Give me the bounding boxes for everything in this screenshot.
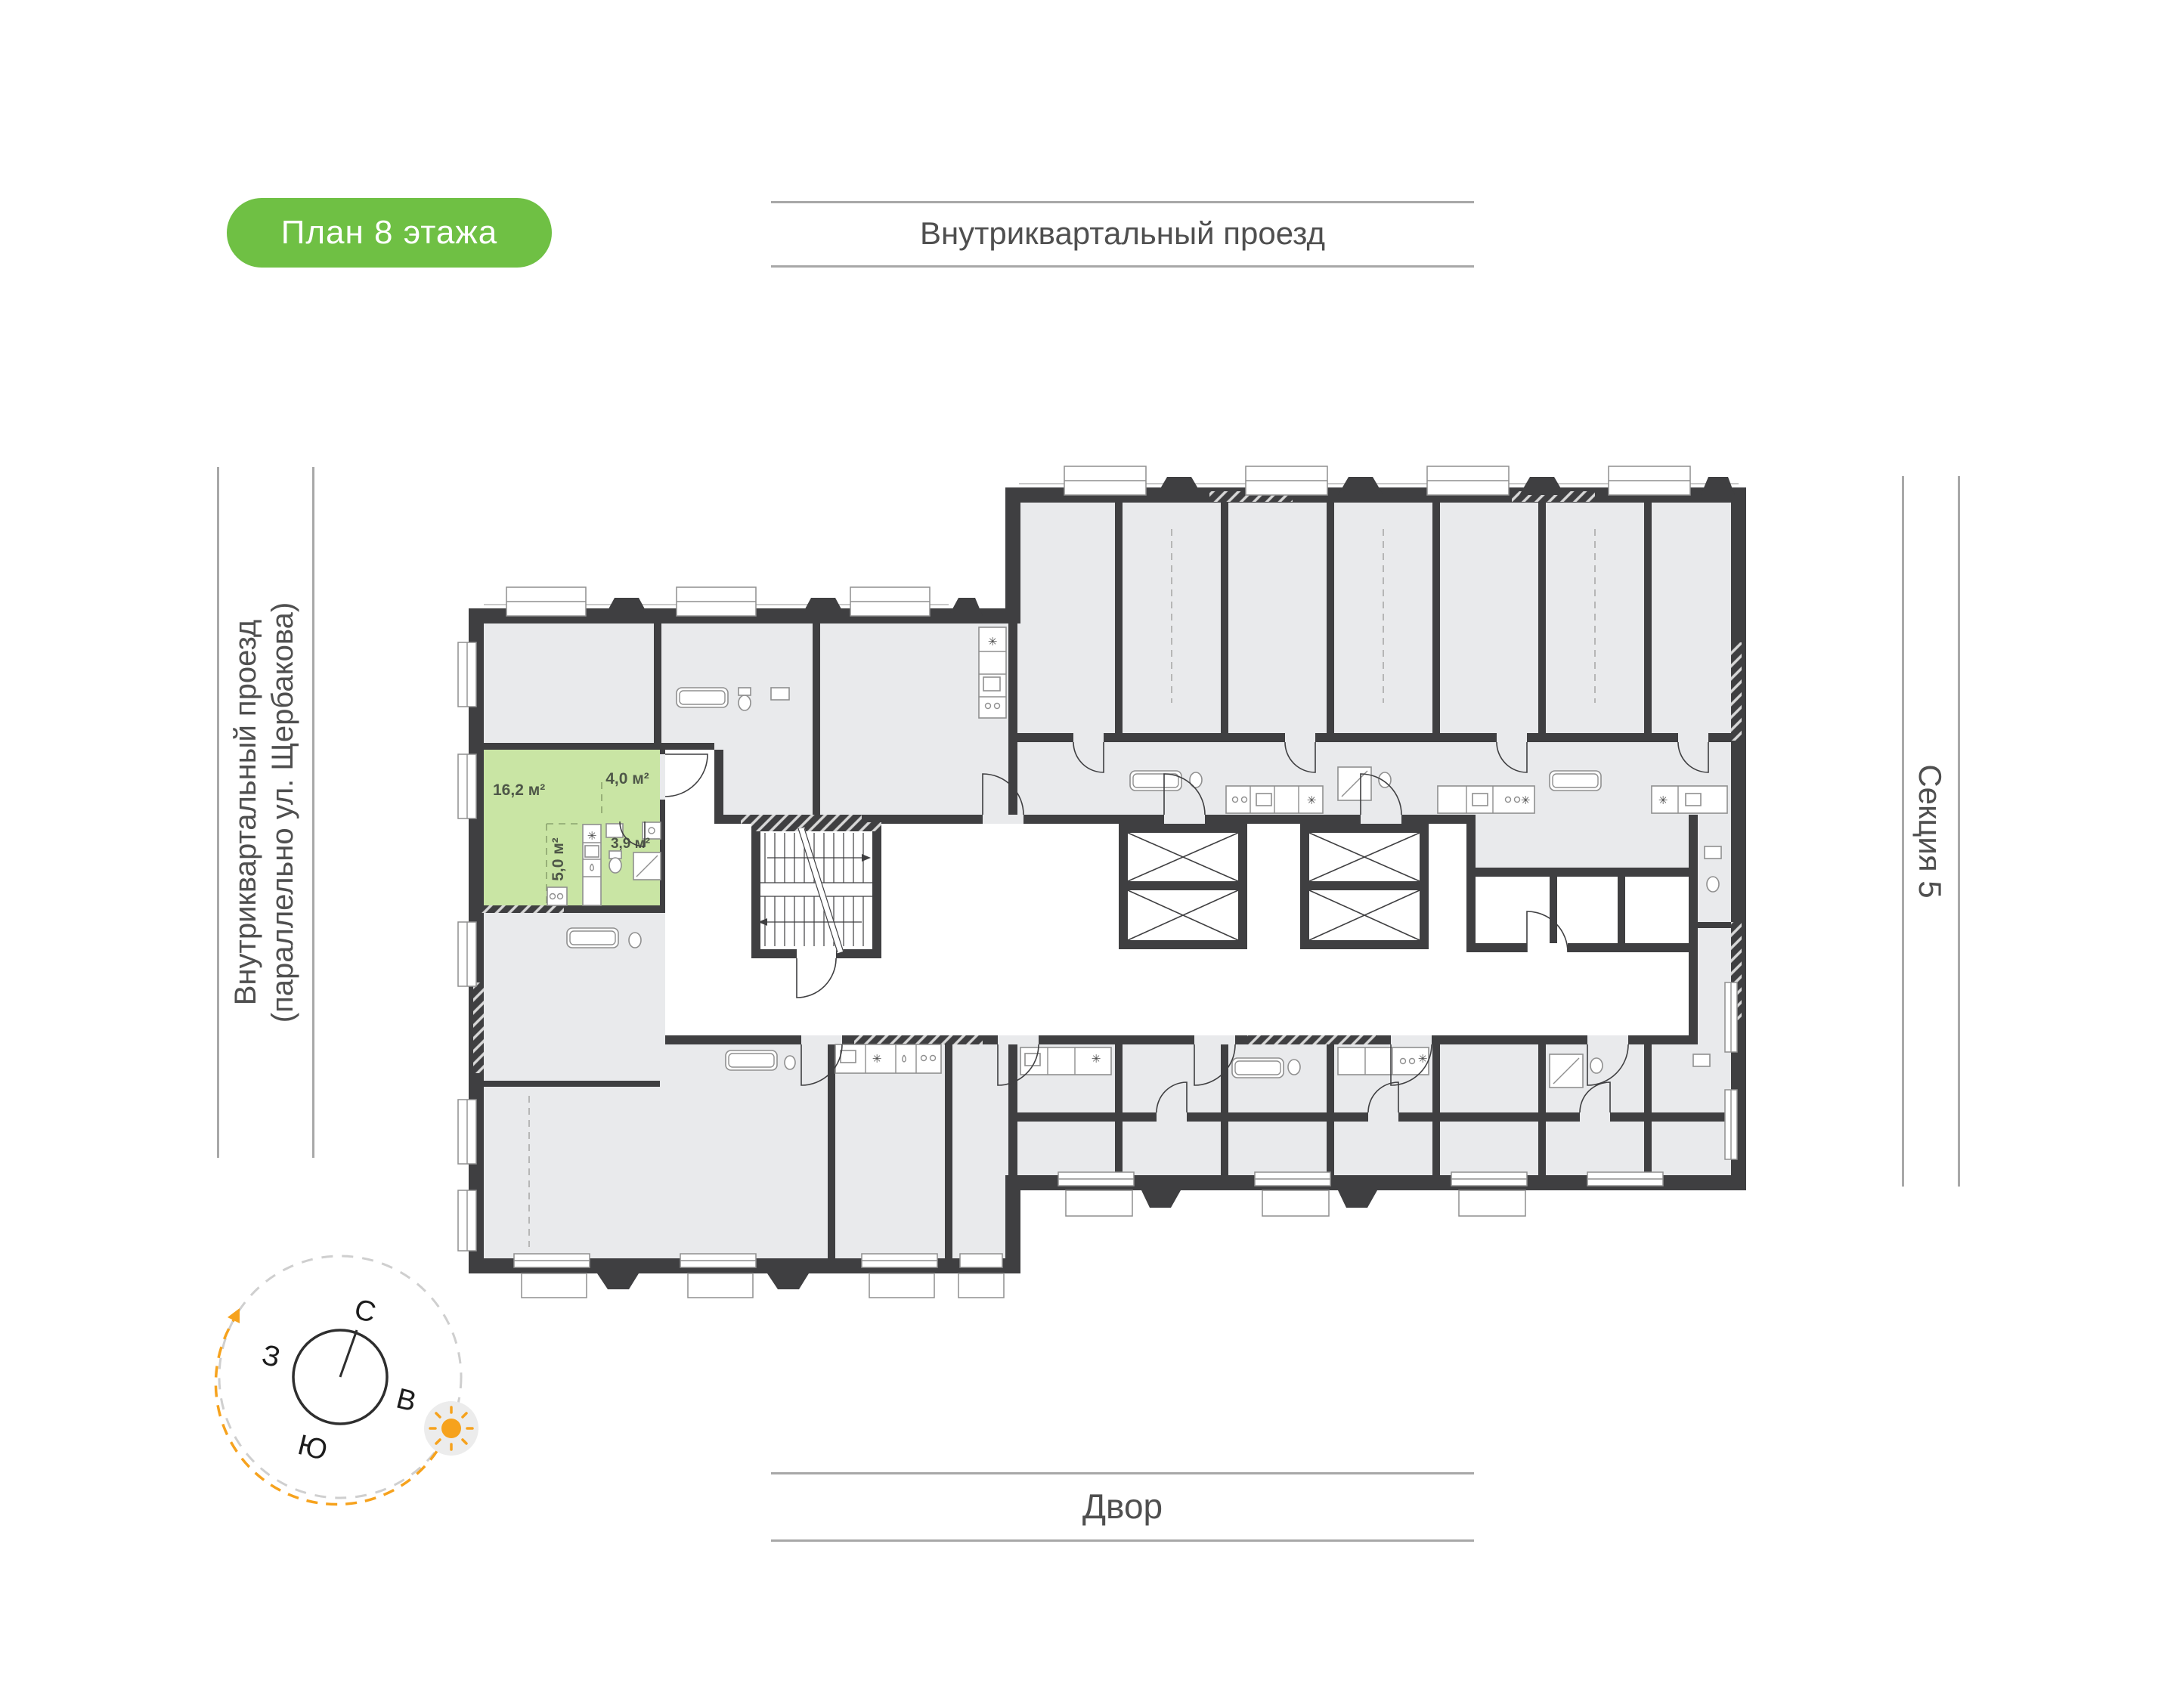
svg-text:✳: ✳ <box>1307 794 1317 807</box>
left-road-line-outer <box>217 467 219 1158</box>
section-text: Секция 5 <box>1912 764 1948 898</box>
svg-text:✳: ✳ <box>1521 794 1531 807</box>
toilet-icon <box>1707 877 1719 892</box>
toilet-icon <box>739 695 751 710</box>
left-road-label: Внутриквартальный проезд (параллельно ул… <box>228 457 302 1168</box>
floor-plan-drawing: 16,2 м² 4,0 м² 5,0 м² 3,9 м² <box>454 453 1769 1315</box>
sink-icon <box>1693 1054 1710 1066</box>
toilet-icon <box>785 1056 795 1069</box>
compass-south: Ю <box>295 1429 330 1467</box>
left-road-line-inner <box>312 467 314 1158</box>
left-road-text-1: Внутриквартальный проезд <box>228 457 265 1168</box>
compass-east: В <box>393 1383 420 1419</box>
compass-west: З <box>259 1339 283 1374</box>
toilet-icon <box>1288 1060 1300 1075</box>
sun-icon <box>424 1401 478 1456</box>
section-line-outer <box>1958 476 1960 1187</box>
svg-text:✳: ✳ <box>872 1052 882 1066</box>
left-road-text-2: (параллельно ул. Щербакова) <box>265 457 302 1168</box>
top-road-label: Внутриквартальный проезд <box>771 201 1474 268</box>
room-area-label: 16,2 м² <box>493 781 545 799</box>
stairwell <box>758 828 872 952</box>
svg-text:✳: ✳ <box>1418 1052 1428 1066</box>
floor-plan-page: План 8 этажа Внутриквартальный проезд Дв… <box>0 0 2177 1708</box>
elevator-bank-east <box>1300 824 1429 949</box>
entry-vestibule <box>665 750 714 952</box>
sink-icon <box>771 688 789 700</box>
sink-icon <box>1705 846 1721 859</box>
corridor-right-bay <box>1476 877 1689 952</box>
elevator-bank-west <box>1119 824 1247 949</box>
courtyard-label: Двор <box>771 1472 1474 1542</box>
svg-text:✳: ✳ <box>1092 1052 1101 1066</box>
kitchen-area-label: 5,0 м² <box>550 837 567 881</box>
section-label: Секция 5 <box>1912 673 1948 990</box>
corridor <box>665 952 1689 1035</box>
compass: С З В Ю <box>200 1237 518 1555</box>
compass-north: С <box>351 1293 379 1329</box>
top-road-text: Внутриквартальный проезд <box>920 215 1325 251</box>
toilet-icon <box>629 933 641 948</box>
floor-badge: План 8 этажа <box>227 198 552 268</box>
section-line-inner <box>1902 476 1904 1187</box>
svg-text:✳: ✳ <box>587 829 597 843</box>
toilet-icon <box>1590 1058 1603 1073</box>
courtyard-text: Двор <box>1082 1487 1163 1526</box>
svg-text:✳: ✳ <box>988 635 998 648</box>
hall-area-label: 4,0 м² <box>605 770 649 787</box>
svg-text:✳: ✳ <box>1658 794 1668 807</box>
